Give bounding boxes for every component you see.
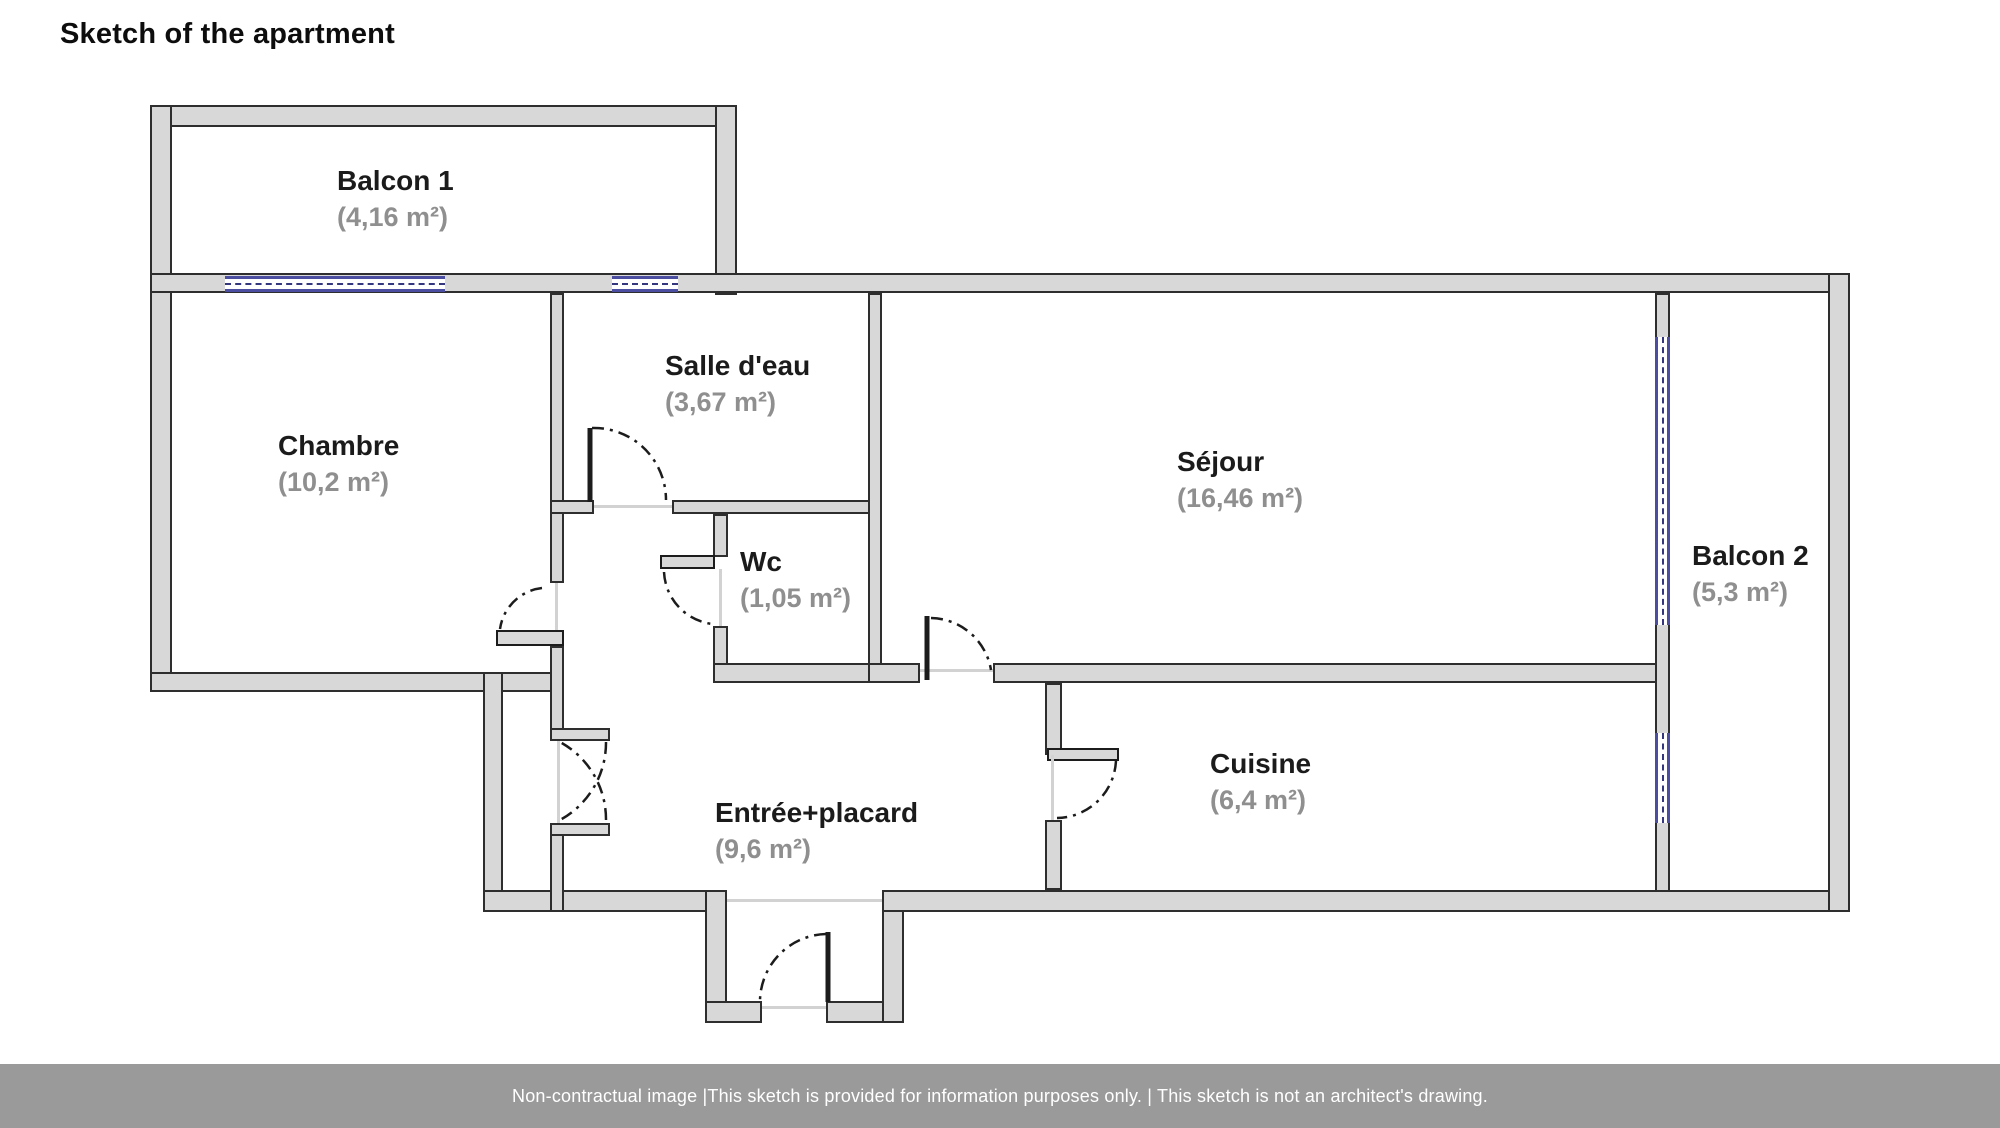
wall-balcony2-top	[1655, 293, 1670, 339]
closet-door-arc-bottom	[560, 742, 606, 820]
room-label-cuisine: Cuisine (6,4 m²)	[1210, 748, 1311, 815]
wall-salledeau-bottom-right	[672, 500, 882, 514]
threshold-sejour-door	[920, 669, 993, 672]
threshold-wc-door	[719, 569, 722, 626]
room-name-balcon2: Balcon 2	[1692, 540, 1809, 572]
room-area-balcon1: (4,16 m²)	[337, 202, 454, 232]
room-label-sejour: Séjour (16,46 m²)	[1177, 446, 1303, 513]
wall-balcony1-right	[715, 105, 737, 295]
room-label-wc: Wc (1,05 m²)	[740, 546, 851, 613]
wall-kitchen-lower	[1045, 820, 1062, 890]
wall-salledeau-bottom-left	[550, 500, 594, 514]
room-name-cuisine: Cuisine	[1210, 748, 1311, 780]
wall-balcony1-top	[150, 105, 737, 127]
wall-wc-upper	[713, 514, 728, 557]
wall-sejour-left	[868, 293, 882, 683]
room-area-sejour: (16,46 m²)	[1177, 483, 1303, 513]
wall-outer-step-left	[483, 672, 503, 912]
wall-bottom-right	[882, 890, 1850, 912]
threshold-kitchen-door	[1051, 755, 1054, 820]
room-label-entree: Entrée+placard (9,6 m²)	[715, 797, 918, 864]
room-name-salledeau: Salle d'eau	[665, 350, 810, 382]
wc-door-arc	[664, 572, 712, 624]
footer-disclaimer-text: Non-contractual image |This sketch is pr…	[512, 1086, 1488, 1107]
chambre-door-leaf	[496, 630, 564, 646]
wall-outer-left	[150, 105, 172, 692]
wall-outer-right	[1828, 273, 1850, 912]
wall-balcony2-mid	[1655, 623, 1670, 735]
wall-vestibule-bottom-left	[705, 1001, 762, 1023]
room-area-salledeau: (3,67 m²)	[665, 387, 810, 417]
sejour-door-arc	[931, 618, 991, 670]
chambre-door-arc	[500, 588, 542, 629]
threshold-closet-doors	[557, 741, 560, 823]
wall-wc-lower	[713, 626, 728, 665]
room-label-chambre: Chambre (10,2 m²)	[278, 430, 399, 497]
room-name-balcon1: Balcon 1	[337, 165, 454, 197]
room-name-chambre: Chambre	[278, 430, 399, 462]
room-area-wc: (1,05 m²)	[740, 583, 851, 613]
room-name-wc: Wc	[740, 546, 851, 578]
floor-plan-page: Sketch of the apartment	[0, 0, 2000, 1128]
footer-disclaimer-bar: Non-contractual image |This sketch is pr…	[0, 1064, 2000, 1128]
wall-wc-bottom	[713, 663, 883, 683]
wc-door-leaf	[660, 555, 715, 569]
wall-closet-nib-top	[550, 728, 610, 741]
wall-divider-main	[993, 663, 1670, 683]
room-area-chambre: (10,2 m²)	[278, 467, 399, 497]
sejour-window	[1655, 337, 1670, 625]
threshold-vestibule-passage	[727, 899, 882, 902]
threshold-salledeau-door	[594, 505, 672, 508]
threshold-chambre-door	[555, 583, 558, 630]
page-title: Sketch of the apartment	[60, 18, 395, 51]
room-label-salledeau: Salle d'eau (3,67 m²)	[665, 350, 810, 417]
kitchen-door-arc	[1057, 760, 1116, 818]
wall-divider-stub	[868, 663, 920, 683]
room-name-entree: Entrée+placard	[715, 797, 918, 829]
salledeau-door-arc	[592, 428, 666, 500]
closet-door-arc-top	[560, 742, 606, 820]
cuisine-window	[1655, 733, 1670, 823]
wall-bottom-left	[483, 890, 727, 912]
threshold-entrance-door	[762, 1006, 826, 1009]
wall-closet-upper	[550, 646, 564, 732]
wall-kitchen-upper	[1045, 683, 1062, 755]
room-label-balcon2: Balcon 2 (5,3 m²)	[1692, 540, 1809, 607]
entrance-door-arc	[760, 934, 826, 1000]
kitchen-door-leaf	[1047, 748, 1119, 761]
room-area-balcon2: (5,3 m²)	[1692, 577, 1809, 607]
room-label-balcon1: Balcon 1 (4,16 m²)	[337, 165, 454, 232]
room-area-cuisine: (6,4 m²)	[1210, 785, 1311, 815]
salledeau-window	[612, 276, 678, 292]
room-name-sejour: Séjour	[1177, 446, 1303, 478]
wall-chambre-salledeau	[550, 293, 564, 583]
chambre-window	[225, 276, 445, 292]
wall-balcony2-bottom	[1655, 821, 1670, 892]
room-area-entree: (9,6 m²)	[715, 834, 918, 864]
wall-closet-lower	[550, 834, 564, 912]
